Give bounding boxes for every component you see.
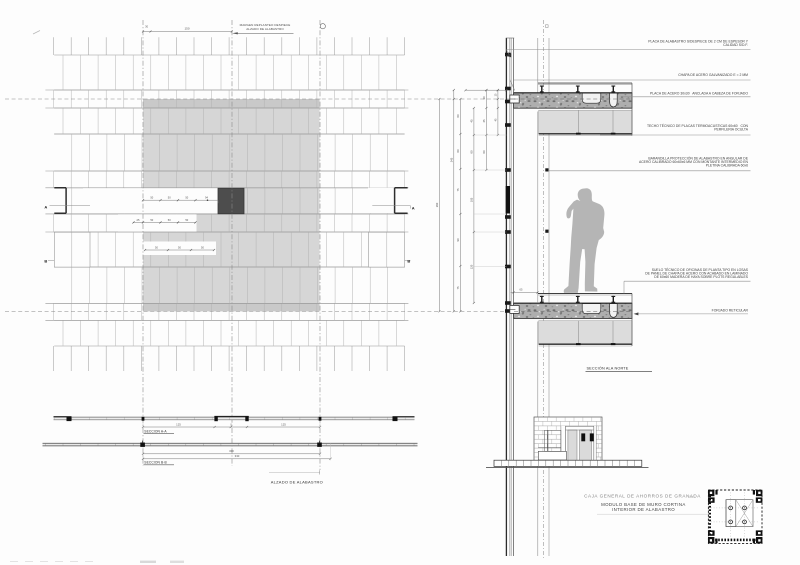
svg-text:A: A xyxy=(44,205,47,210)
svg-text:B: B xyxy=(44,259,47,264)
svg-text:A: A xyxy=(412,205,415,210)
svg-text:60: 60 xyxy=(482,150,486,153)
svg-text:SECCIÓN ALA NORTE: SECCIÓN ALA NORTE xyxy=(587,366,629,371)
svg-text:PLETINA CALIBRADA 60x6: PLETINA CALIBRADA 60x6 xyxy=(706,164,748,168)
svg-text:CALIDAD S/D.F.: CALIDAD S/D.F. xyxy=(723,43,748,47)
svg-text:DE 60x60 MADERA DE HAYA SOBRE: DE 60x60 MADERA DE HAYA SOBRE PLOTS REGU… xyxy=(654,275,748,279)
svg-text:125: 125 xyxy=(281,422,286,426)
svg-text:45: 45 xyxy=(469,119,473,122)
svg-text:360: 360 xyxy=(435,202,439,207)
svg-text:30: 30 xyxy=(482,96,486,99)
svg-text:ALZADO DE ALABASTRO: ALZADO DE ALABASTRO xyxy=(246,27,284,31)
svg-text:SECCION B-B: SECCION B-B xyxy=(144,461,167,465)
svg-text:INTERIOR DE ALABASTRO: INTERIOR DE ALABASTRO xyxy=(612,507,675,512)
svg-text:150: 150 xyxy=(184,26,189,30)
svg-text:60: 60 xyxy=(469,150,473,153)
svg-text:345: 345 xyxy=(449,157,453,162)
svg-text:CHAPA DE ACERO GALVANIZADO E =: CHAPA DE ACERO GALVANIZADO E = 2 MM xyxy=(678,73,748,77)
svg-text:SECCION A-A: SECCION A-A xyxy=(144,429,167,433)
svg-text:PLACA DE ACERO 30x30 ANCLADA: PLACA DE ACERO 30x30 ANCLADA A CABEZA DE… xyxy=(650,92,748,96)
svg-text:PERFILERIA OCULTA: PERFILERIA OCULTA xyxy=(714,127,749,131)
svg-text:45: 45 xyxy=(482,119,486,122)
svg-text:CAJA GENERAL DE AHORROS DE GRA: CAJA GENERAL DE AHORROS DE GRANADA xyxy=(584,493,701,498)
svg-text:90: 90 xyxy=(456,238,460,241)
svg-text:330: 330 xyxy=(235,454,240,458)
svg-text:FORJADO RETICULAR: FORJADO RETICULAR xyxy=(712,309,749,313)
svg-text:75: 75 xyxy=(456,188,460,191)
svg-text:60: 60 xyxy=(456,114,460,117)
svg-text:300: 300 xyxy=(229,449,234,453)
svg-text:105: 105 xyxy=(469,197,473,202)
svg-text:A3A: A3A xyxy=(688,495,695,499)
svg-text:125: 125 xyxy=(176,422,181,426)
svg-text:60: 60 xyxy=(456,149,460,152)
svg-text:ALZADO DE ALABASTRO: ALZADO DE ALABASTRO xyxy=(271,480,323,485)
svg-text:120: 120 xyxy=(469,264,473,269)
svg-text:B: B xyxy=(407,259,410,264)
svg-text:75: 75 xyxy=(456,286,460,289)
